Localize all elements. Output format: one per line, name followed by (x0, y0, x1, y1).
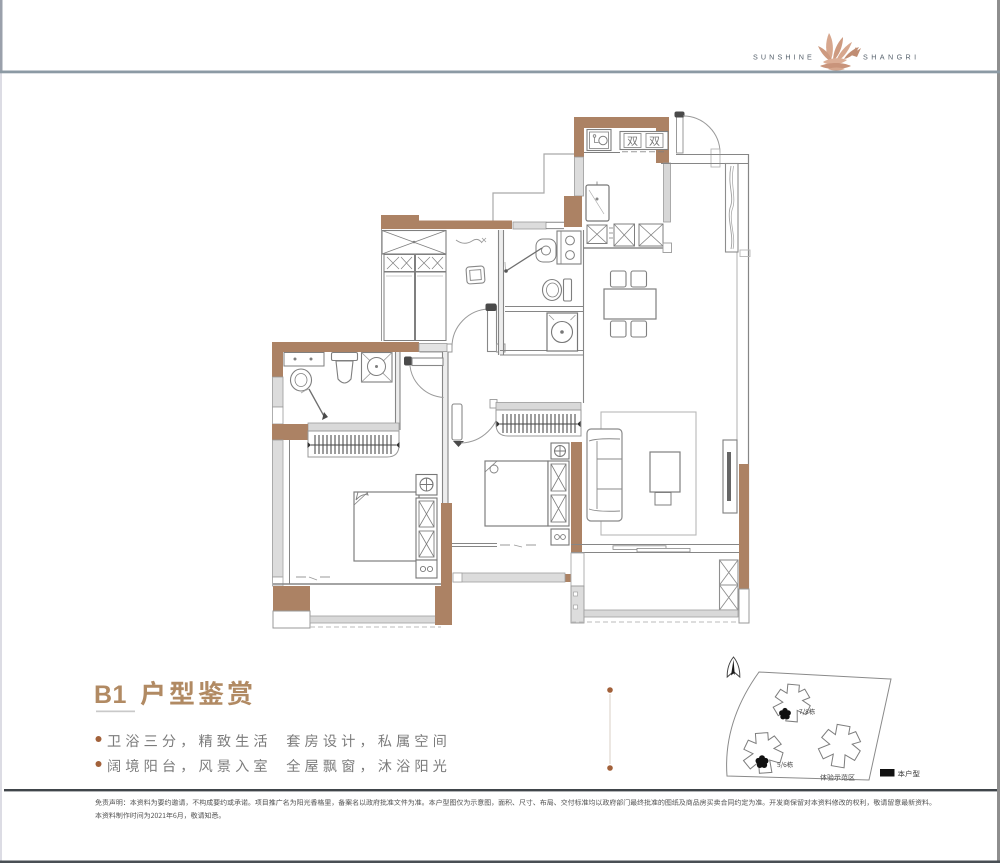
svg-text:SUNSHINE: SUNSHINE (753, 53, 815, 62)
svg-text:B1: B1 (94, 681, 127, 709)
svg-text:SHANGRI: SHANGRI (863, 53, 920, 62)
